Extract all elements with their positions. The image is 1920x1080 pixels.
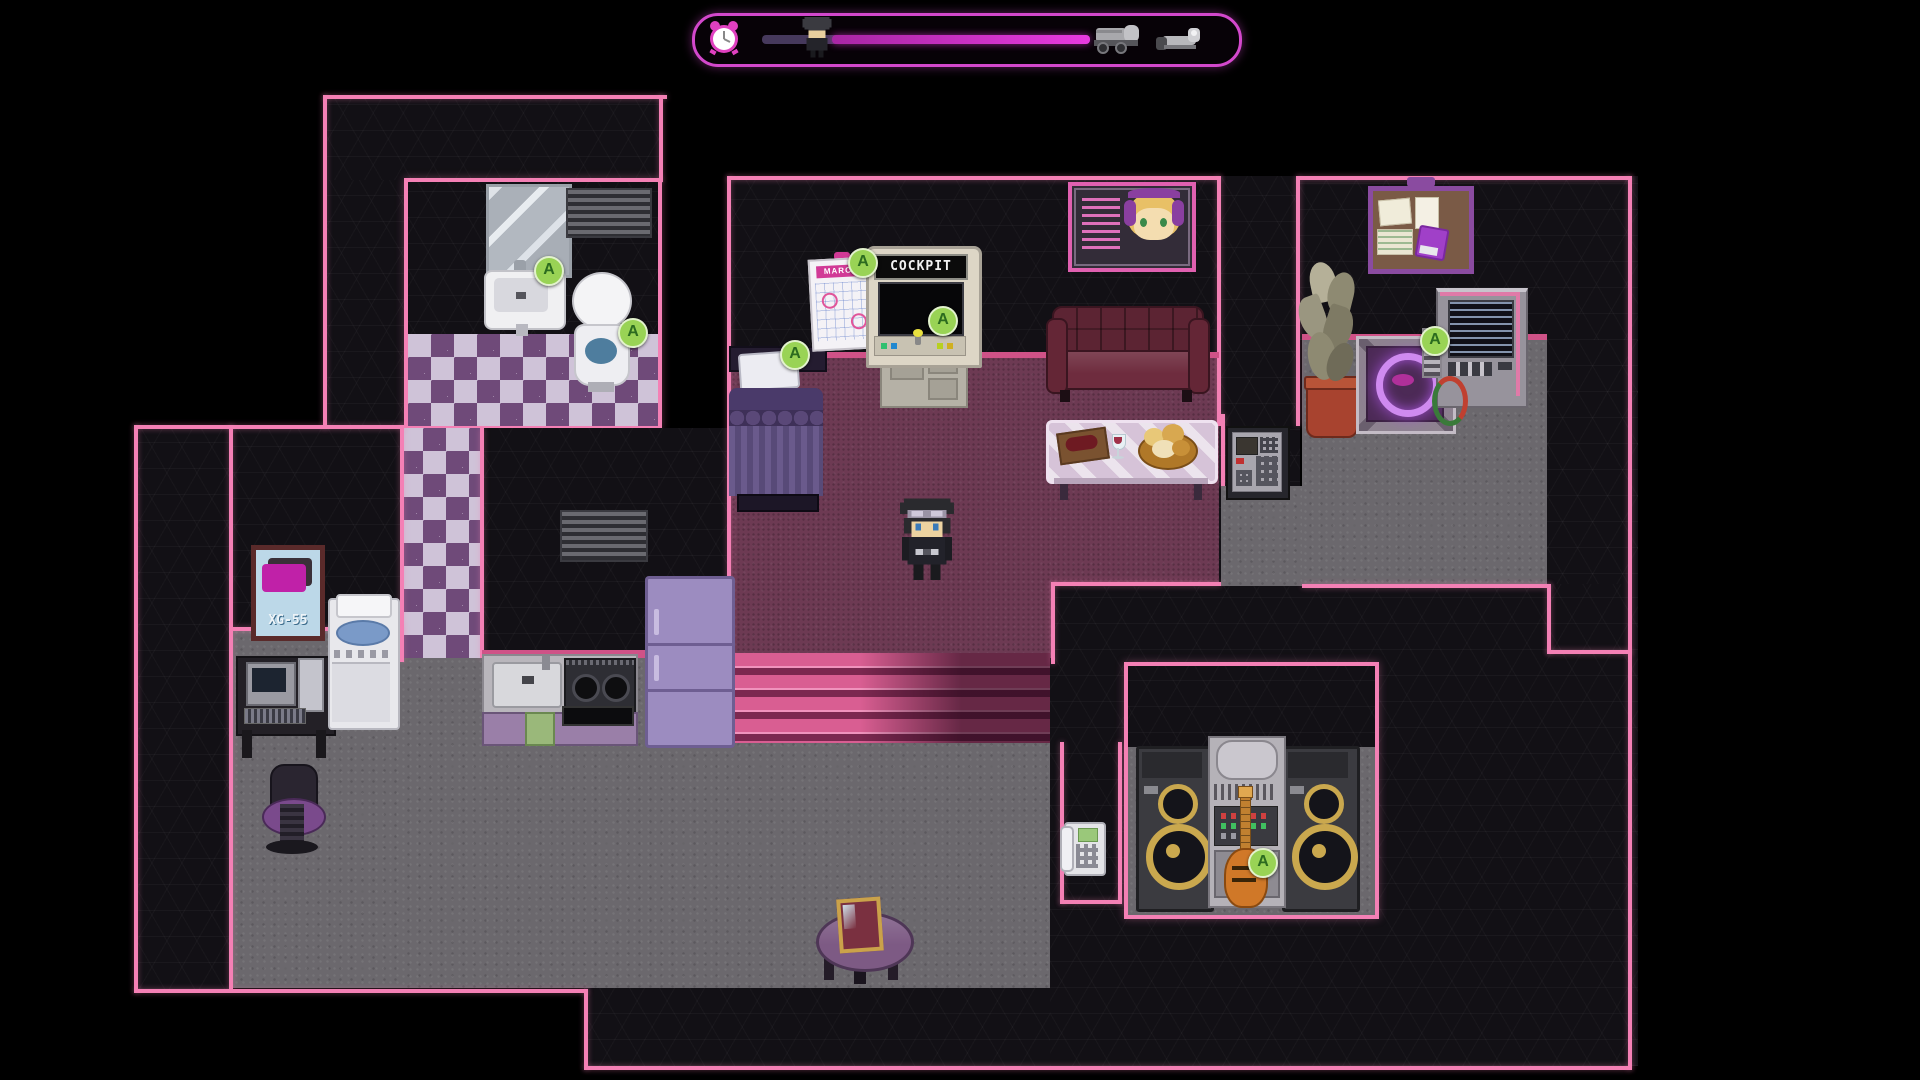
wall-outline [659, 95, 663, 182]
wall-block [134, 425, 233, 989]
wall-outline [1221, 414, 1225, 486]
wall-outline [1298, 176, 1632, 180]
wall-outline [1051, 582, 1055, 664]
destination-scooter-icon [1154, 24, 1206, 54]
round-table [816, 906, 908, 986]
wall-outline [1628, 176, 1632, 1070]
couch [1046, 306, 1206, 408]
interact-badge-icon: A [1420, 326, 1450, 356]
game-viewport: A A XG-55 [0, 0, 1920, 1080]
bed[interactable] [729, 346, 823, 512]
alarm-clock-icon [704, 18, 744, 58]
poster-text-lines [1082, 198, 1120, 252]
wall-outline [1051, 582, 1221, 586]
refrigerator [645, 576, 735, 748]
wall-outline [323, 95, 667, 99]
kitchen-vent-icon [560, 510, 648, 562]
interact-badge-icon: A [1248, 848, 1278, 878]
interact-badge-icon: A [928, 306, 958, 336]
progress-player-marker-icon [800, 15, 834, 59]
wine-glass [1110, 434, 1126, 464]
hallway-checker-floor [400, 428, 484, 662]
wall-outline [1217, 176, 1221, 426]
wall-outline [1547, 650, 1632, 654]
washing-machine [328, 598, 396, 726]
poster-caption: XG-55 [256, 613, 320, 628]
wall-block [323, 180, 408, 430]
wall-outline [134, 989, 588, 993]
headphone-band [1128, 188, 1180, 198]
wall-outline [229, 425, 233, 989]
progress-fill [832, 35, 1090, 44]
gas-stove [564, 658, 636, 712]
bathroom-vent-icon [566, 188, 652, 238]
player-character [896, 498, 958, 584]
purple-notebook [1414, 225, 1449, 262]
interact-badge-icon: A [780, 340, 810, 370]
cockpit-marquee: COCKPIT [874, 254, 968, 280]
interact-badge-icon: A [534, 256, 564, 286]
telephone [1062, 818, 1104, 876]
glass-table [1046, 420, 1216, 502]
wall-outline [323, 95, 327, 429]
idol-poster [1068, 182, 1196, 272]
computer-desk [236, 656, 332, 762]
kitchen-sink [492, 662, 562, 708]
wall-block [584, 988, 1050, 1066]
bread-basket [1138, 426, 1194, 470]
wall-outline [1547, 584, 1551, 654]
bulletin-board [1368, 186, 1474, 274]
phone-nook-outline [1118, 742, 1122, 904]
wall-outline [1302, 584, 1551, 588]
headphone-left [1124, 200, 1136, 226]
cockpit-arcade-machine[interactable]: COCKPIT [866, 246, 976, 404]
framed-photo [836, 897, 884, 954]
speaker-left [1136, 746, 1208, 906]
wall-block [323, 95, 663, 183]
wall-outline [134, 425, 404, 429]
wall-keypad [1226, 426, 1290, 500]
oven [562, 706, 634, 726]
wall-outline [584, 1066, 1632, 1070]
speaker-right [1282, 746, 1354, 906]
interact-badge-icon: A [618, 318, 648, 348]
wall-outline [134, 425, 138, 993]
office-chair [262, 764, 322, 860]
hose [1432, 376, 1468, 426]
doorway-floor [1221, 486, 1302, 586]
phone-nook-outline [1060, 900, 1122, 904]
stairs [733, 653, 1050, 743]
hand-towel [525, 712, 555, 746]
destination-truck-icon [1092, 20, 1148, 56]
xg55-poster: XG-55 [251, 545, 325, 641]
wall-outline [727, 176, 1221, 180]
interact-badge-icon: A [848, 248, 878, 278]
wall-outline [584, 989, 588, 1070]
wall-outline [480, 428, 484, 658]
headphone-right [1172, 200, 1184, 226]
